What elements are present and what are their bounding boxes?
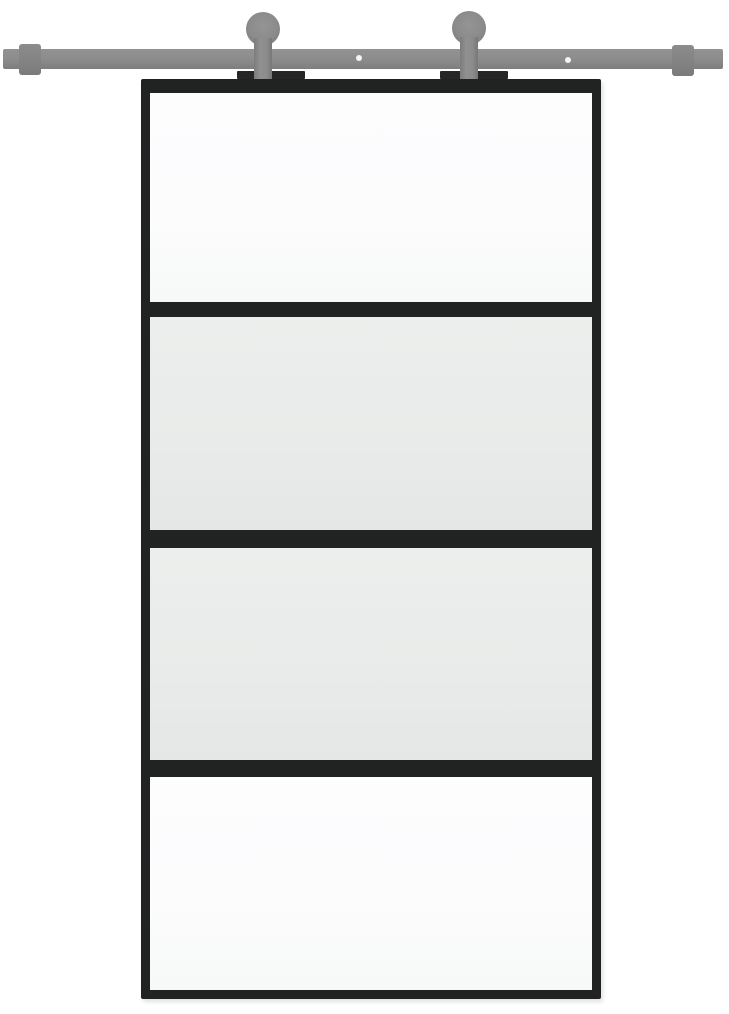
glass-panel-3-frosted [150, 548, 592, 760]
rail-screw-hole-right [565, 57, 571, 63]
door-mullion-1 [150, 302, 592, 317]
sliding-rail [3, 49, 723, 69]
glass-panel-1-clear [150, 93, 592, 302]
rail-screw-hole-left [356, 55, 362, 61]
rail-end-stop-left [19, 44, 41, 75]
glass-panel-4-clear [150, 777, 592, 990]
door-mullion-3 [150, 760, 592, 777]
rail-end-stop-right [672, 45, 694, 76]
door-mullion-2 [150, 530, 592, 548]
hanger-strap-left [254, 38, 272, 79]
product-photo-sliding-door [0, 0, 729, 1014]
glass-panel-2-frosted [150, 317, 592, 530]
sliding-door [141, 79, 601, 999]
hanger-strap-right [460, 37, 478, 79]
